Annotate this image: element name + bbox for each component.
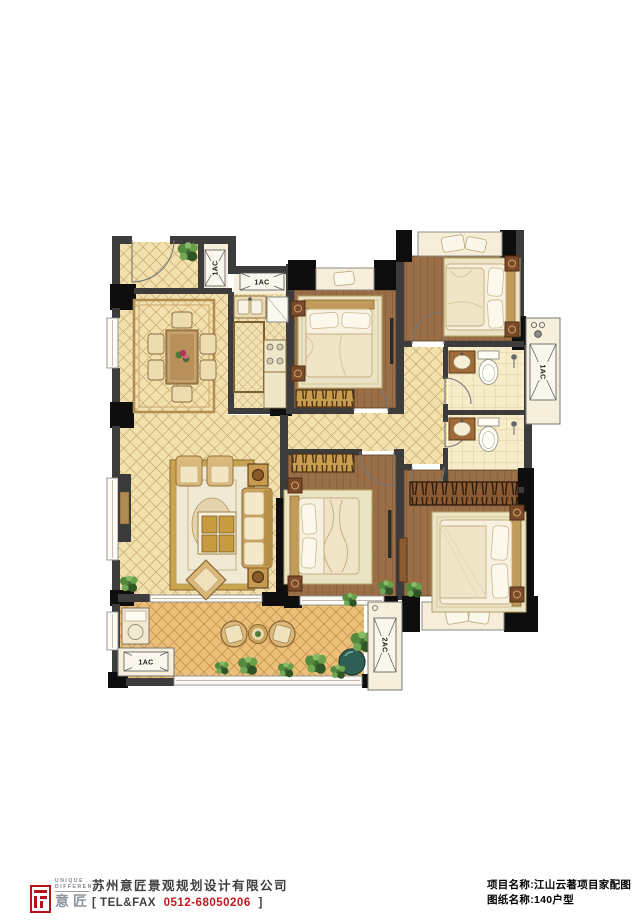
wardrobe <box>410 482 518 505</box>
sink-basin <box>454 355 471 369</box>
tel-label: TEL&FAX <box>100 897 156 909</box>
coffee-table <box>198 512 236 554</box>
company-info: 苏州意匠景观规划设计有限公司 [ TEL&FAX 0512-68050206 ] <box>92 875 288 909</box>
ac-entry-closet: 1AC <box>205 250 225 286</box>
sofa <box>242 488 272 568</box>
kitchen <box>234 296 288 408</box>
wicker-chair <box>221 621 247 647</box>
dining-room <box>134 300 216 412</box>
drawing-sheet: 1AC 1AC 1AC 1AC <box>0 0 640 920</box>
tv-screen <box>120 492 129 524</box>
ac-platform-2ac: 2AC <box>368 602 402 690</box>
logo-brand-name: 意匠 <box>55 893 95 909</box>
duvet <box>446 268 484 326</box>
project-info: 项目名称:江山云著项目家配图 图纸名称:140户型 <box>487 878 631 908</box>
ac-label: 2AC <box>381 638 388 653</box>
side-cabinet <box>399 538 407 582</box>
plant-bedroom <box>405 582 422 598</box>
hallway-stub <box>402 451 443 464</box>
duvet <box>440 526 486 598</box>
tel-bracket-open: [ <box>92 897 96 909</box>
project-name-line: 项目名称:江山云著项目家配图 <box>487 878 631 893</box>
logo-divider <box>55 891 89 892</box>
hallway-floor-vertical <box>402 347 447 413</box>
plant-master <box>378 580 394 595</box>
tv-panel <box>388 510 392 558</box>
plant-entry <box>178 242 198 261</box>
kitchen-faucet <box>248 297 252 301</box>
logo-mark-icon <box>30 885 51 913</box>
toilet-tank <box>478 351 499 359</box>
kitchen-counter <box>264 372 286 408</box>
ac-label: 1AC <box>139 660 154 667</box>
tv-panel <box>390 318 394 364</box>
wicker-chair <box>269 621 295 647</box>
headboard <box>304 300 374 309</box>
dining-table <box>166 330 198 384</box>
wardrobe <box>292 454 354 472</box>
toilet-tank <box>478 418 499 426</box>
stove <box>264 340 286 372</box>
ac-platform-right: 1AC <box>526 318 560 424</box>
duvet <box>306 334 372 377</box>
ac-label: 1AC <box>539 365 546 380</box>
shower-head <box>511 354 517 360</box>
logo-text-different: DIFFERENT <box>55 884 95 890</box>
headboard <box>290 496 299 576</box>
duvet <box>324 498 359 574</box>
ac-kitchen-top: 1AC <box>240 273 284 290</box>
sheet-name-line: 图纸名称:140户型 <box>487 893 631 908</box>
company-name: 苏州意匠景观规划设计有限公司 <box>92 875 288 894</box>
toilet-bowl <box>479 427 498 452</box>
plant-living <box>120 575 138 592</box>
toilet-bowl <box>479 360 498 385</box>
bedroom-top-right <box>444 256 520 337</box>
ac-label: 1AC <box>213 261 220 276</box>
ac-label: 1AC <box>255 280 270 287</box>
title-block: UNIQUE DIFFERENT 意匠 苏州意匠景观规划设计有限公司 [ TEL… <box>0 870 640 920</box>
hallway-floor <box>278 413 447 451</box>
sink-basin <box>454 422 471 436</box>
ac-balcony-left: 1AC <box>118 648 174 676</box>
kitchen-island <box>234 322 264 392</box>
tel-bracket-close: ] <box>258 897 262 909</box>
shower-head <box>511 421 517 427</box>
floor-plan: 1AC 1AC 1AC 1AC <box>0 0 640 920</box>
balcony-table <box>249 625 268 644</box>
tel-number: 0512-68050206 <box>164 897 251 909</box>
company-logo: UNIQUE DIFFERENT 意匠 <box>30 876 90 914</box>
wardrobe <box>296 390 354 407</box>
company-telephone: [ TEL&FAX 0512-68050206 ] <box>92 897 288 909</box>
